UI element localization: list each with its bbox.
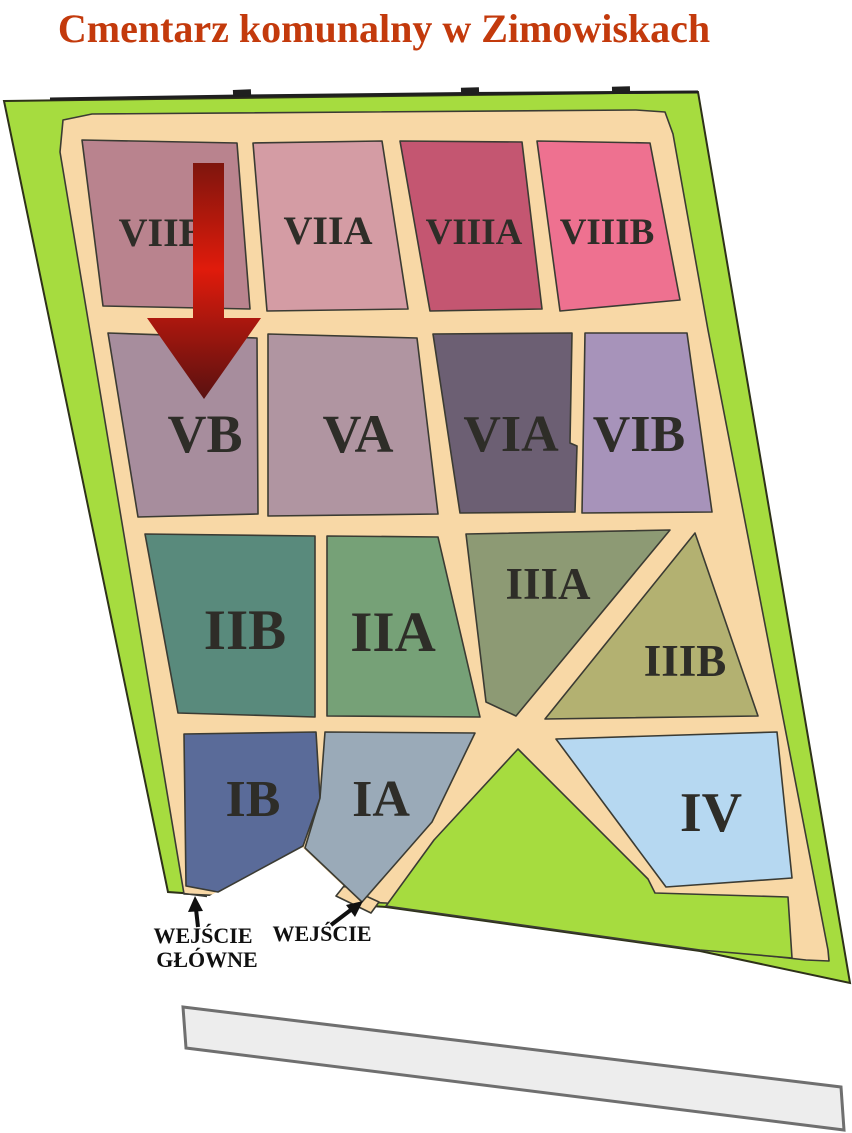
- section-viiia-label: VIIIA: [426, 212, 523, 253]
- main-entrance-label-line2: GŁÓWNE: [156, 947, 257, 972]
- section-vb-label: VB: [167, 404, 242, 464]
- section-viiib-label: VIIIB: [560, 212, 655, 253]
- section-iiia-label: IIIA: [505, 559, 591, 609]
- cemetery-plan-page: Cmentarz komunalny w Zimowiskach: [0, 0, 852, 1133]
- main-entrance-label-line1: WEJŚCIE: [153, 923, 252, 948]
- page-title: Cmentarz komunalny w Zimowiskach: [58, 6, 710, 51]
- section-va-label: VA: [322, 404, 393, 464]
- section-ia-label: IA: [352, 771, 410, 828]
- section-iib-label: IIB: [204, 599, 286, 662]
- section-iiib-label: IIIB: [644, 636, 727, 686]
- section-vib-label: VIB: [593, 406, 685, 463]
- section-via-label: VIA: [463, 406, 559, 463]
- section-iv-label: IV: [680, 782, 742, 844]
- section-viib-label: VIIB: [119, 210, 206, 255]
- section-ib-label: IB: [226, 771, 281, 828]
- section-iia-label: IIA: [350, 601, 436, 664]
- section-viia-label: VIIA: [284, 208, 373, 253]
- road: [183, 1007, 844, 1130]
- side-entrance-label: WEJŚCIE: [272, 921, 371, 946]
- cemetery-map: Cmentarz komunalny w Zimowiskach: [0, 0, 852, 1133]
